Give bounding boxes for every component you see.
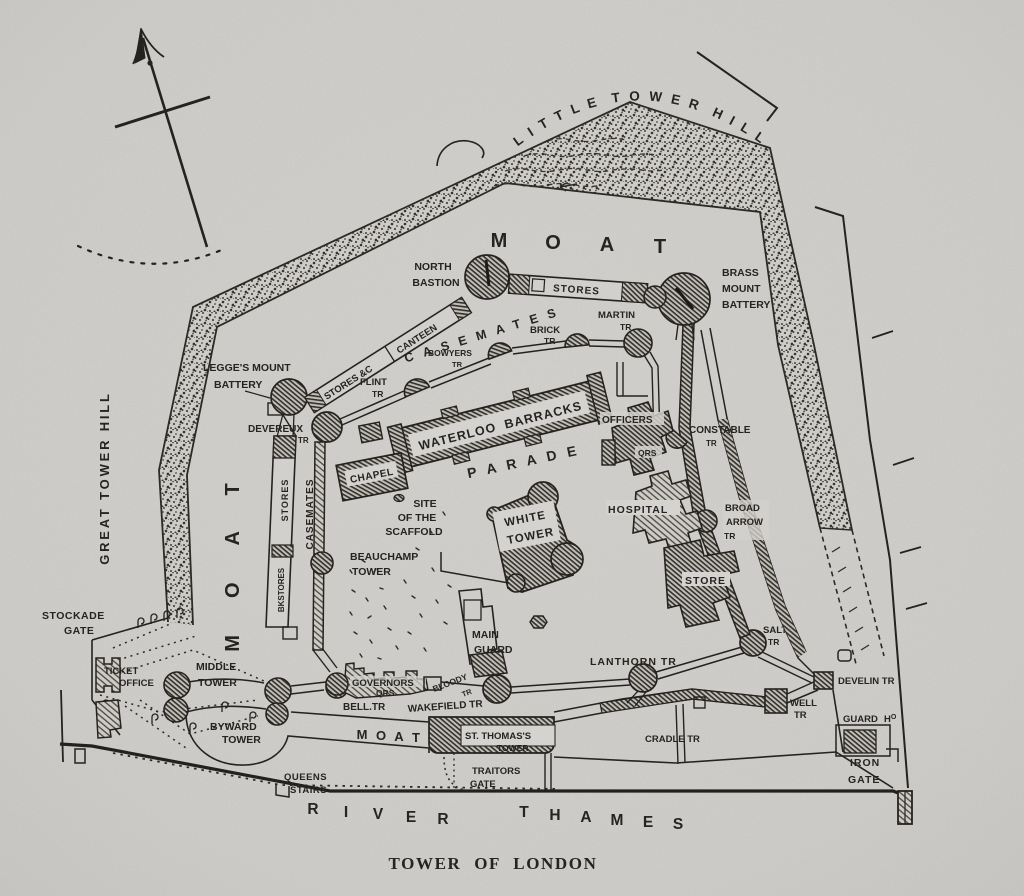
svg-text:TR: TR (724, 531, 735, 541)
svg-text:MOUNT: MOUNT (722, 283, 761, 295)
svg-text:GUARD: GUARD (843, 714, 878, 725)
svg-text:TOWER: TOWER (352, 566, 391, 578)
svg-text:DEVELIN TR: DEVELIN TR (838, 676, 895, 687)
svg-text:NORTH: NORTH (414, 261, 451, 273)
svg-text:A: A (394, 729, 404, 744)
svg-text:R: R (437, 811, 448, 828)
svg-text:TR: TR (706, 439, 717, 448)
svg-text:M: M (611, 812, 624, 829)
svg-text:TR: TR (544, 336, 555, 346)
svg-text:BEAUCHAMP: BEAUCHAMP (350, 551, 418, 563)
svg-text:BROAD: BROAD (725, 503, 760, 514)
svg-text:TR: TR (794, 710, 807, 721)
svg-text:SITE: SITE (413, 498, 436, 510)
svg-text:O: O (545, 232, 561, 254)
svg-text:BRICK: BRICK (530, 325, 560, 336)
svg-text:I: I (344, 804, 348, 821)
svg-text:MAIN: MAIN (472, 629, 499, 641)
svg-text:TOWER: TOWER (497, 743, 528, 753)
svg-text:T: T (654, 236, 666, 258)
svg-text:QUEENS: QUEENS (284, 772, 327, 783)
svg-text:T: T (412, 730, 420, 745)
svg-text:BRASS: BRASS (722, 267, 759, 279)
svg-text:TR: TR (768, 637, 779, 647)
svg-text:TR: TR (372, 389, 383, 399)
svg-text:BATTERY: BATTERY (722, 299, 770, 311)
svg-text:BYWARD: BYWARD (210, 721, 257, 733)
svg-text:MOAT: MOAT (222, 446, 244, 651)
svg-text:STAIRS: STAIRS (290, 785, 327, 796)
svg-text:BASTION: BASTION (412, 277, 459, 289)
svg-text:TR: TR (452, 360, 463, 369)
svg-text:TR: TR (620, 322, 631, 332)
svg-text:T: T (519, 804, 529, 821)
svg-text:LANTHORN TR: LANTHORN TR (590, 656, 677, 668)
svg-text:STOCKADE: STOCKADE (42, 610, 105, 622)
svg-text:LEGGE'S MOUNT: LEGGE'S MOUNT (203, 362, 291, 374)
svg-text:TOWER OF LONDON: TOWER OF LONDON (389, 854, 598, 873)
svg-text:OF THE: OF THE (398, 512, 437, 524)
svg-text:GREAT TOWER HILL: GREAT TOWER HILL (97, 391, 112, 565)
svg-text:TRAITORS: TRAITORS (472, 766, 520, 777)
svg-text:GATE: GATE (848, 774, 880, 786)
svg-text:SCAFFOLD: SCAFFOLD (385, 526, 443, 538)
svg-text:OFFICERS: OFFICERS (602, 415, 653, 426)
svg-text:V: V (373, 806, 384, 823)
svg-text:STORE: STORE (685, 575, 726, 587)
svg-text:TICKET: TICKET (104, 666, 139, 677)
svg-text:GATE: GATE (64, 625, 94, 637)
svg-text:QRS: QRS (376, 688, 395, 698)
svg-text:OFFICE: OFFICE (119, 678, 154, 689)
svg-text:MIDDLE: MIDDLE (196, 661, 236, 673)
svg-text:ST. THOMAS'S: ST. THOMAS'S (465, 731, 531, 742)
svg-text:CRADLE TR: CRADLE TR (645, 734, 700, 745)
svg-text:M: M (491, 230, 508, 252)
svg-text:QRS: QRS (638, 448, 657, 458)
svg-text:R: R (307, 801, 318, 818)
svg-text:TR: TR (298, 436, 309, 445)
svg-text:HOSPITAL: HOSPITAL (608, 504, 668, 516)
svg-text:BATTERY: BATTERY (214, 379, 262, 391)
svg-text:E: E (643, 814, 653, 831)
svg-text:GATE: GATE (470, 779, 496, 790)
svg-text:BKSTORES: BKSTORES (277, 567, 286, 612)
svg-text:H: H (549, 807, 560, 824)
svg-text:O: O (376, 728, 386, 743)
svg-text:MARTIN: MARTIN (598, 310, 635, 321)
svg-text:STORES: STORES (280, 479, 290, 522)
svg-text:GUARD: GUARD (474, 644, 513, 656)
svg-text:E: E (406, 809, 416, 826)
svg-text:TOWER: TOWER (222, 734, 261, 746)
svg-text:S: S (673, 816, 683, 833)
svg-text:IRON: IRON (850, 757, 880, 769)
svg-text:CONSTABLE: CONSTABLE (689, 425, 751, 436)
svg-text:FLINT: FLINT (360, 377, 387, 388)
svg-text:DEVEREUX: DEVEREUX (248, 424, 303, 435)
svg-text:M: M (357, 727, 368, 742)
svg-text:A: A (600, 234, 614, 256)
svg-text:ARROW: ARROW (726, 517, 763, 528)
svg-text:BELL.TR: BELL.TR (343, 702, 386, 713)
svg-text:A: A (580, 809, 591, 826)
